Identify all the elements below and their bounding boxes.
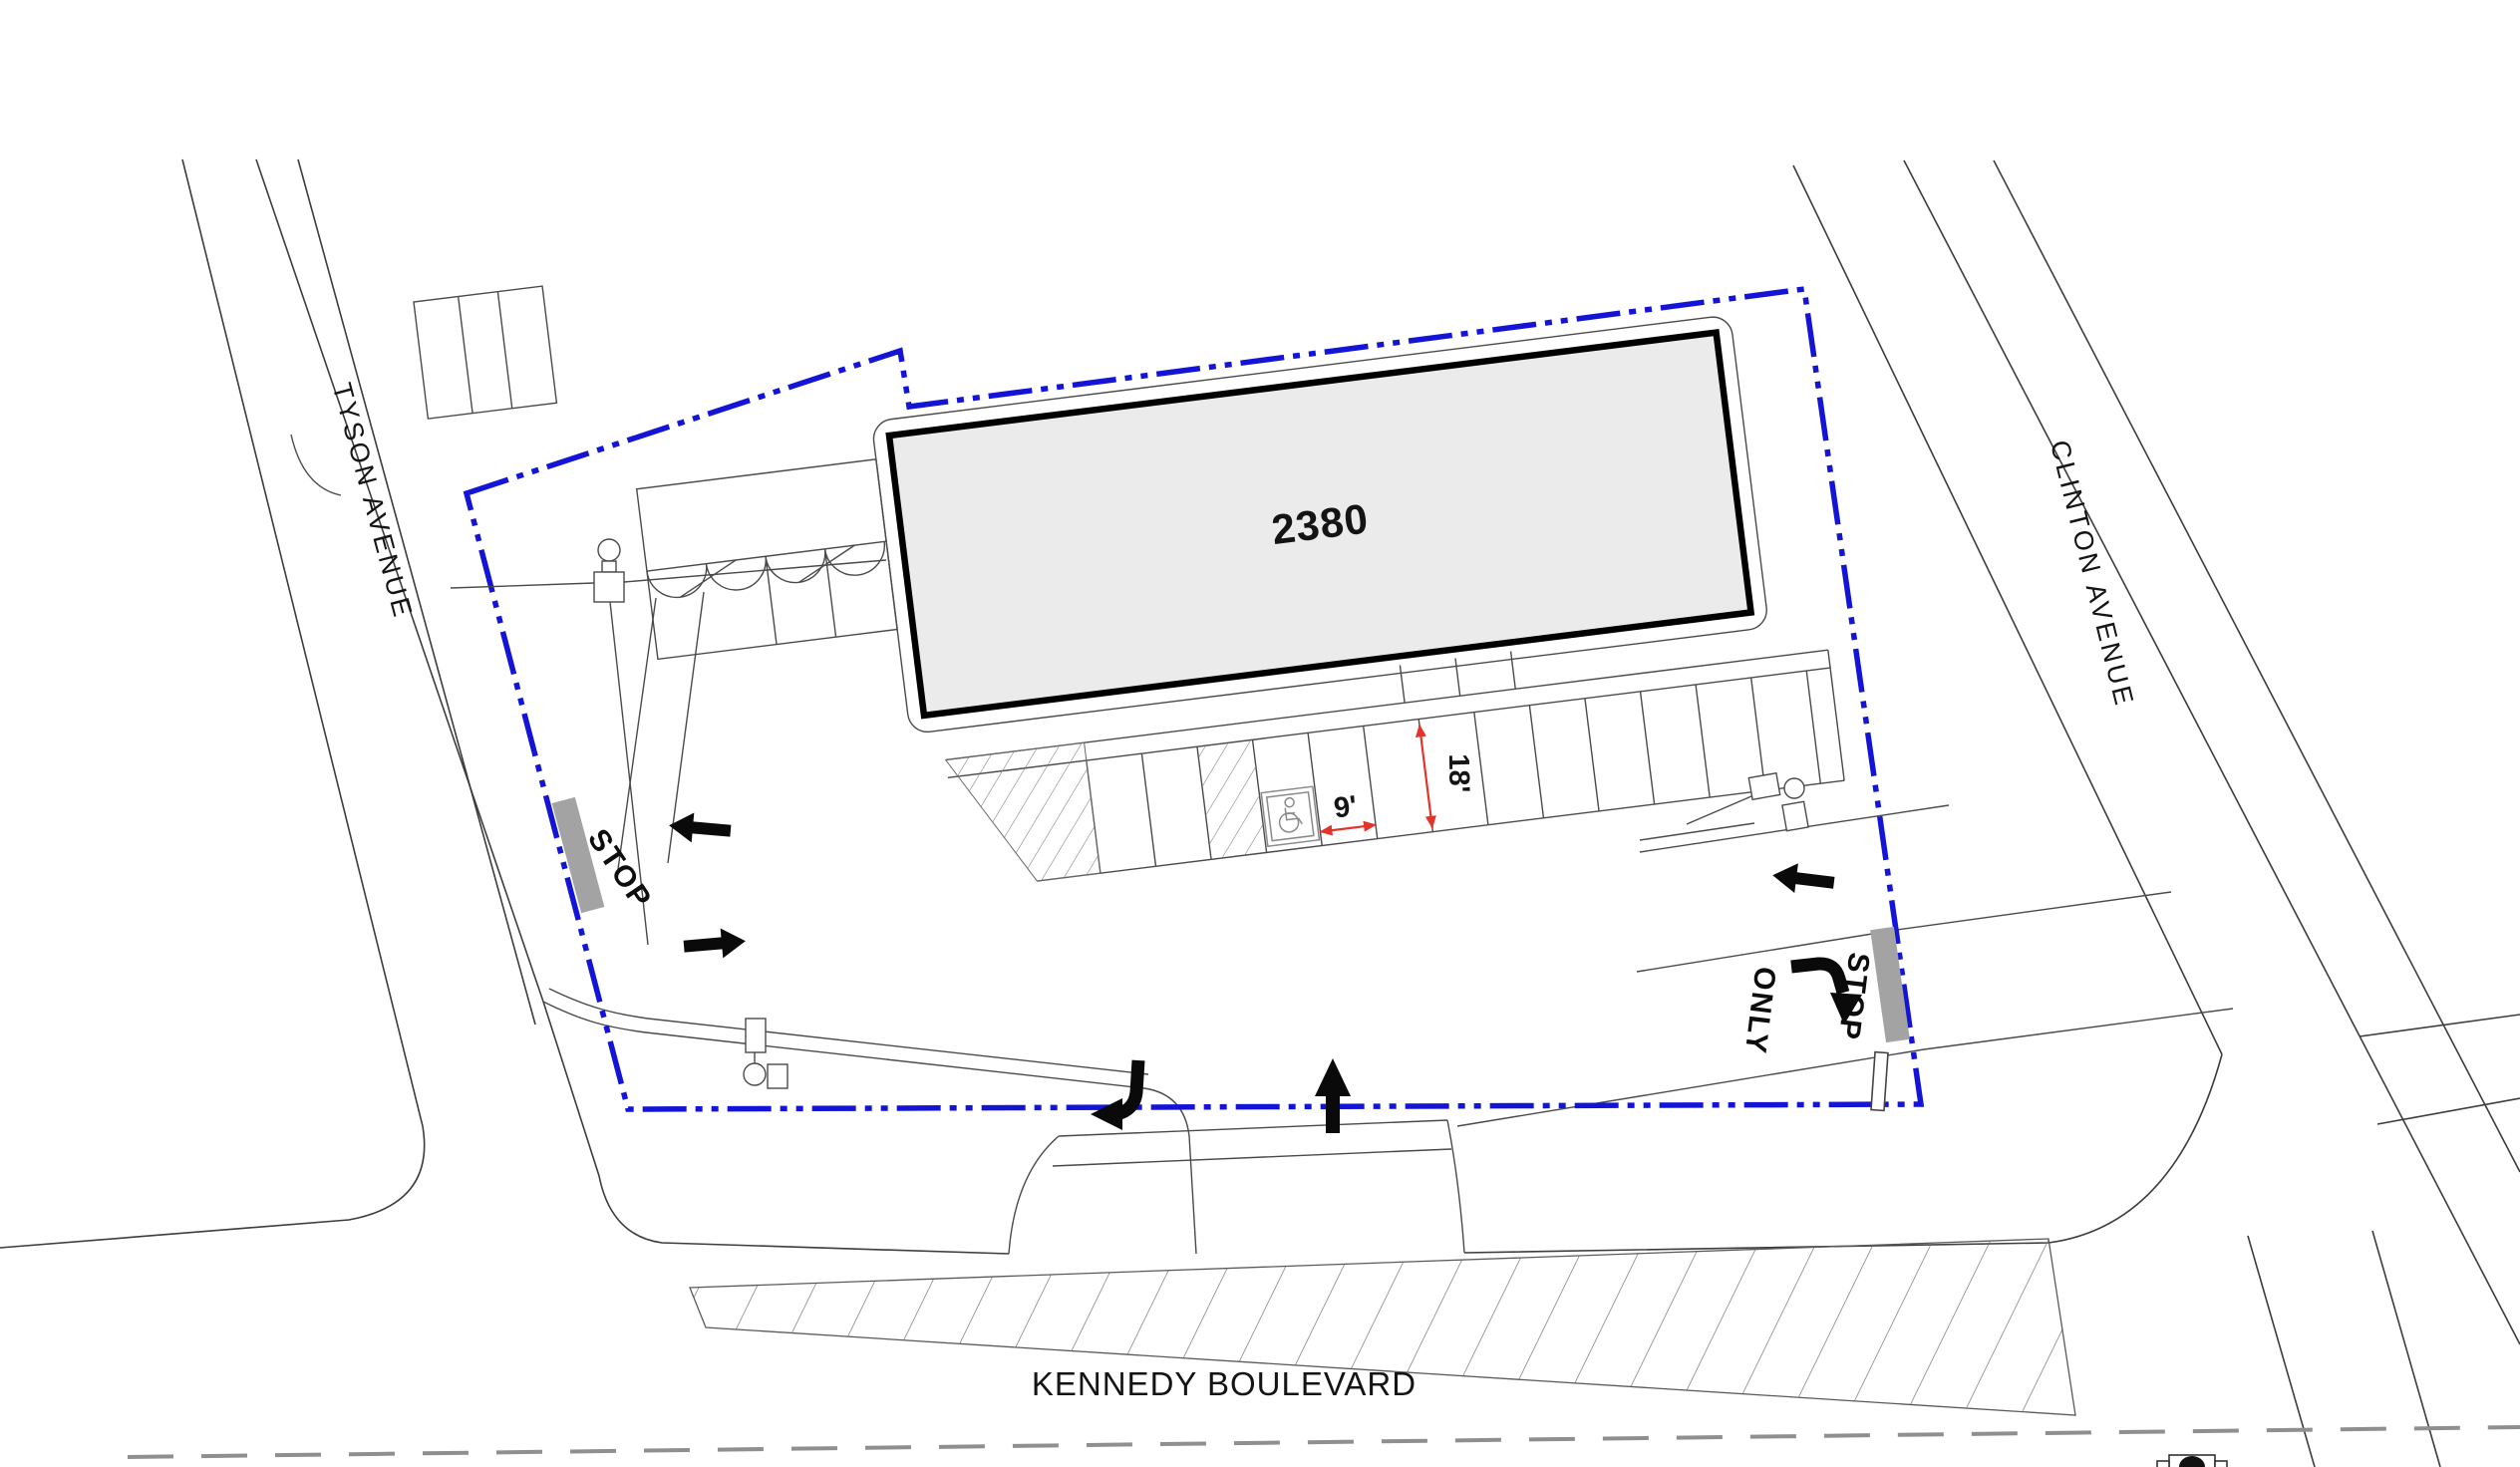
site-plan-canvas: TYSON AVENUE CLINTON AVENUE KENNEDY BOUL… [0,0,2520,1467]
exit-drive-north-edge [1637,892,2171,972]
flow-arrows [668,810,1862,1133]
only-text-east: ONLY [1738,965,1782,1056]
canopy-scalloped [637,459,897,660]
tyson-west-curb [0,159,425,1248]
clinton-avenue-label: CLINTON AVENUE [2045,438,2140,711]
flow-arrow-up-icon [1315,1058,1351,1133]
flow-arrow-left-west-icon [668,810,732,845]
flow-arrow-left-east-icon [1770,860,1835,897]
kennedy-boulevard-label: KENNEDY BOULEVARD [1032,1365,1417,1402]
apron-return-east [1447,1120,1464,1253]
clinton-mid-line [1904,160,2520,1344]
fire-hydrant-icon [2157,1455,2227,1467]
south-curb-main [543,1002,1196,1254]
dimension-18ft-line [1419,725,1432,827]
clinton-east-curb [1994,160,2520,1172]
hatched-access-aisle [1197,739,1267,859]
clinton-south-line-2 [2372,1231,2440,1467]
hatched-end-island [946,742,1101,890]
site-plan-page: TYSON AVENUE CLINTON AVENUE KENNEDY BOUL… [0,0,2520,1467]
sign-post-icon [744,1019,787,1088]
dimension-9ft-line [1320,825,1376,832]
tyson-east-curb [256,159,1009,1254]
flow-arrow-right-west-icon [683,926,747,961]
utility-pole-icon [1687,773,1808,831]
clinton-west-curb [1793,165,2222,1054]
wheelchair-icon [1277,796,1304,833]
street-light-icon [451,539,886,945]
building-block: 2380 [632,308,1844,924]
apron-return-west [1009,1136,1059,1254]
kennedy-apron-bottom [1053,1149,1451,1166]
site-curbs [543,805,2233,1254]
clinton-south-line-1 [2248,1236,2315,1467]
handicap-parking-icon [1261,786,1319,846]
dimension-18ft-label: 18' [1442,753,1475,793]
street-tyson: TYSON AVENUE [0,159,1009,1254]
tyson-inner-line [298,159,535,1025]
offsite-pad [414,286,556,419]
kennedy-north-curb-east [1464,1054,2222,1253]
tyson-avenue-label: TYSON AVENUE [327,380,419,623]
tyson-driveway-return [291,435,341,495]
dimension-9ft-label: 9' [1332,790,1359,825]
kennedy-centerline [128,1427,2520,1457]
